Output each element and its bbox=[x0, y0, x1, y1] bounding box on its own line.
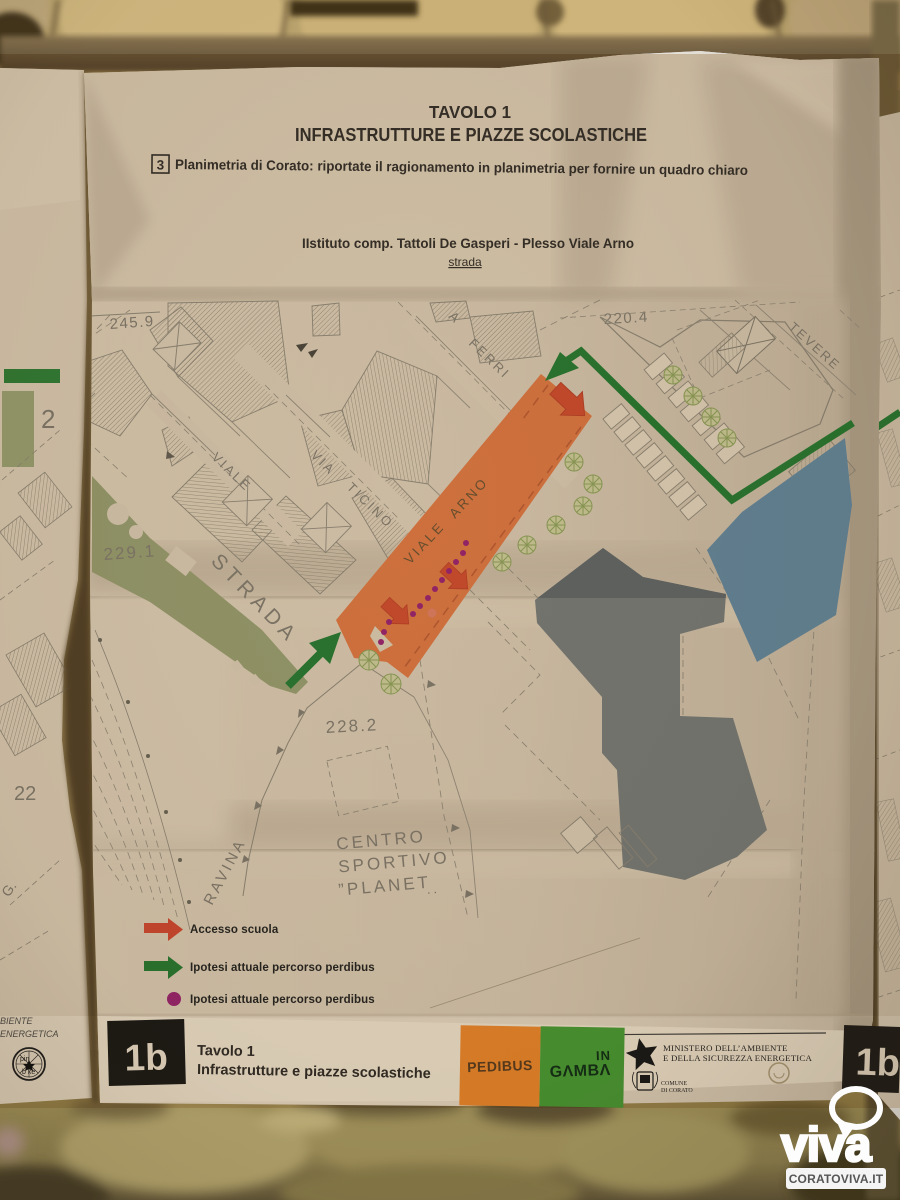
svg-text:CORATOVIVA.IT: CORATOVIVA.IT bbox=[789, 1172, 884, 1186]
svg-text:viva: viva bbox=[781, 1119, 872, 1172]
